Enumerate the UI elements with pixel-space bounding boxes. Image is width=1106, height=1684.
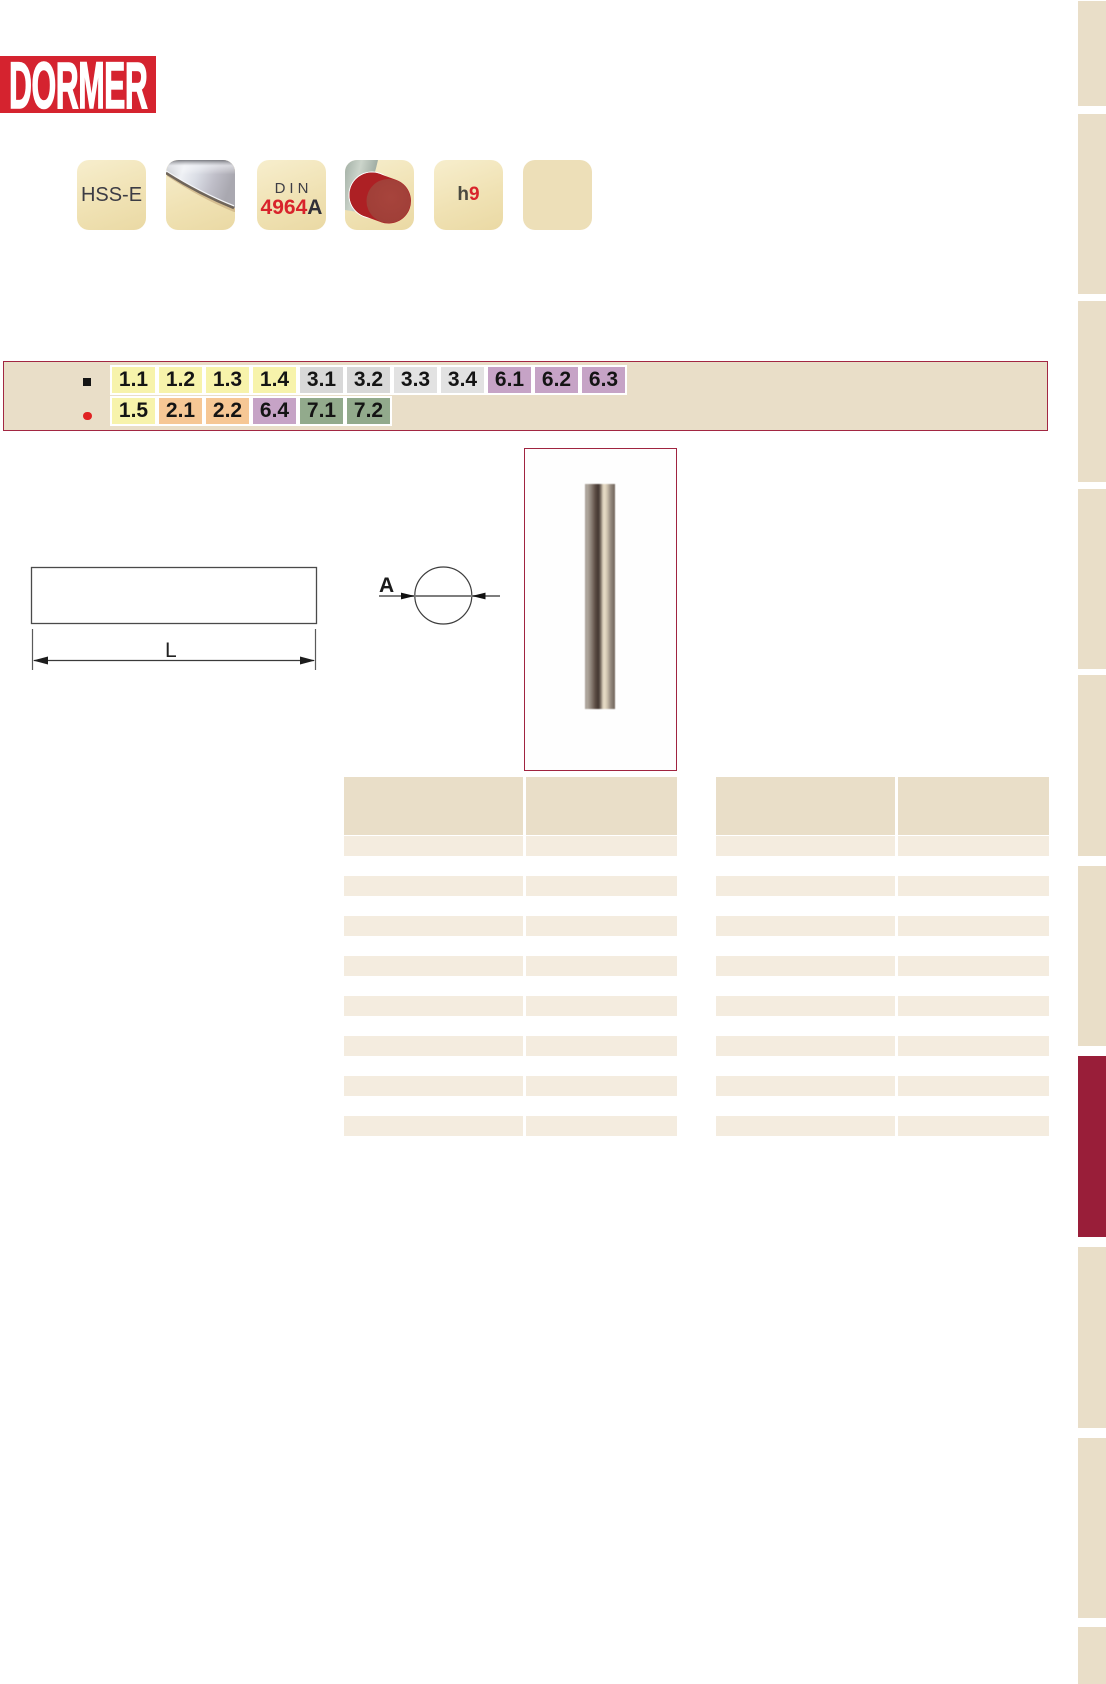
svg-text:A: A	[379, 574, 394, 597]
svg-text:L: L	[165, 639, 177, 662]
